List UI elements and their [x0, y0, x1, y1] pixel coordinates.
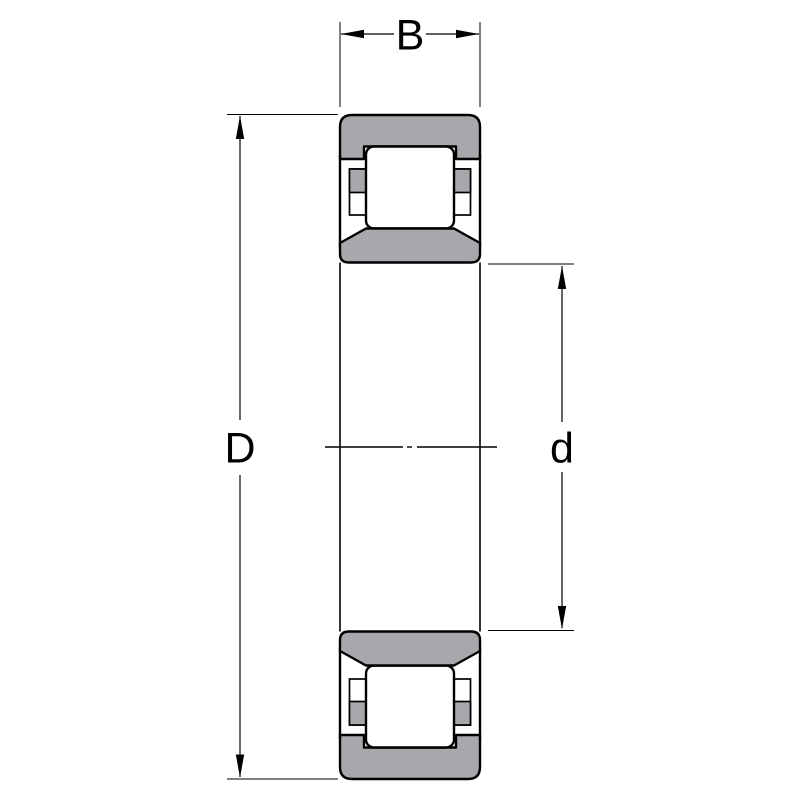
d-outer-arrow-down-icon [236, 755, 244, 778]
roller [366, 147, 454, 229]
bore-diameter-label: d [550, 424, 574, 472]
width-label: B [396, 11, 425, 59]
drawing-canvas: B D d [0, 0, 800, 800]
cage-right-bar [454, 169, 471, 193]
dimension-outer-diameter-D: D [224, 115, 338, 780]
bearing-top-section [340, 115, 480, 263]
cage-right [454, 169, 471, 215]
b-arrow-left-icon [341, 30, 364, 38]
dimension-width-B: B [340, 11, 480, 107]
bearing-bottom-section [340, 632, 480, 780]
d-outer-arrow-up-icon [236, 116, 244, 139]
cage-left [350, 169, 367, 215]
bearing-technical-drawing: B D d [0, 0, 800, 800]
outer-diameter-label: D [224, 424, 255, 472]
d-bore-arrow-up-icon [558, 266, 566, 289]
dimension-bore-diameter-d: d [488, 264, 574, 631]
inner-ring-section [340, 229, 480, 263]
cage-left-bar [350, 169, 367, 193]
b-arrow-right-icon [456, 30, 479, 38]
d-bore-arrow-down-icon [558, 606, 566, 629]
